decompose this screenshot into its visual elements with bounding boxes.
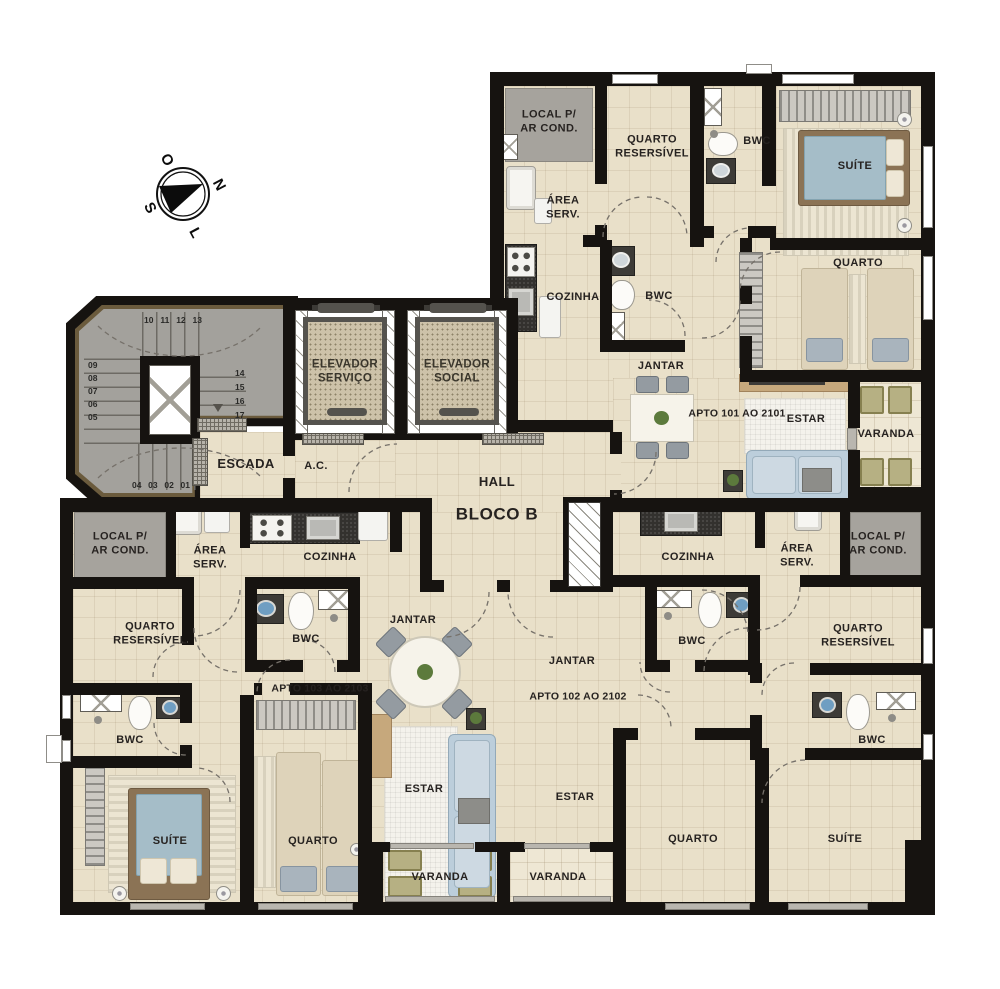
sink-basin (612, 252, 630, 268)
wall (283, 478, 295, 498)
room-label-area-serv: ÁREA SERV. (193, 544, 227, 572)
elevator-sill (439, 408, 479, 416)
wardrobe (85, 766, 105, 866)
wall (245, 660, 303, 672)
room-label-varanda: VARANDA (530, 871, 587, 885)
room-label-quarto: QUARTO (668, 833, 718, 847)
wall (60, 756, 192, 768)
stair-step-number: 05 (88, 412, 97, 422)
stair-step-number: 11 (160, 315, 169, 325)
closet (256, 700, 356, 730)
roller-cap (424, 305, 430, 311)
table-centerpiece (654, 411, 669, 425)
stair-shaft-window (149, 365, 191, 435)
rug (254, 756, 276, 888)
plant-icon (470, 712, 482, 724)
roller-cap (312, 305, 318, 311)
wall (420, 498, 432, 592)
shower (876, 692, 916, 710)
wall (748, 226, 776, 238)
room-label-jantar: JANTAR (549, 655, 595, 669)
window (923, 146, 933, 228)
room-label-quarto: QUARTO (833, 257, 883, 271)
apartment-id-label: APTO 101 AO 2101 (688, 407, 785, 420)
kitchen-sink (664, 510, 698, 532)
window-sill (130, 903, 205, 910)
patio-chair (388, 850, 422, 871)
stair-step-number: 06 (88, 399, 97, 409)
toilet (128, 696, 152, 730)
room-label-local-ar-cond: LOCAL P/ AR COND. (520, 108, 578, 136)
room-label-varanda: VARANDA (858, 428, 915, 442)
apartment-id-label: APTO 103 AO 2103 (271, 682, 368, 695)
elevator-vent (302, 433, 364, 445)
stair-step-number: 04 (132, 480, 141, 490)
window (62, 740, 71, 762)
stair-step-number: 02 (164, 480, 173, 490)
roller-cap (486, 305, 492, 311)
compass-needle-icon (159, 184, 203, 213)
elevator-door-roller (429, 303, 487, 313)
chair (636, 376, 659, 393)
wall (600, 340, 685, 352)
room-label-estar: ESTAR (787, 413, 825, 427)
wall (600, 498, 935, 512)
room-label-suite: SUÍTE (828, 833, 862, 847)
sink-basin (712, 163, 730, 178)
wall (390, 512, 402, 552)
room-label-bwc: BWC (858, 734, 885, 748)
shower-head-icon (330, 614, 338, 622)
wall (240, 512, 250, 548)
stair-step-number: 16 (235, 396, 244, 406)
wall (503, 420, 613, 432)
room-label-bwc: BWC (743, 135, 770, 149)
wall (610, 432, 622, 454)
pillow (170, 858, 197, 884)
ac-label: A.C. (304, 460, 328, 474)
apartment-id-label: APTO 102 AO 2102 (529, 690, 626, 703)
window (46, 735, 62, 763)
compass-rose: O N S L (135, 140, 235, 240)
floor-plan: 10111213 0908070605 14151617 04030201 (0, 0, 1000, 989)
nightstand (216, 886, 231, 901)
nightstand (112, 886, 127, 901)
stove (252, 515, 292, 541)
patio-chair (860, 458, 884, 486)
chair (666, 442, 689, 459)
wall (180, 683, 192, 723)
roller-cap (374, 305, 380, 311)
rug (849, 274, 866, 364)
window-sill (258, 903, 353, 910)
shower (80, 694, 122, 712)
room-label-quarto-reversivel: QUARTO RESERSÍVEL (113, 620, 187, 648)
stair-step-number: 01 (181, 480, 190, 490)
compass-east: L (185, 225, 204, 240)
sofa-cushion (752, 456, 796, 494)
wall (810, 663, 935, 675)
wall (770, 238, 921, 250)
room-label-cozinha: COZINHA (547, 291, 600, 305)
plant-icon (727, 474, 739, 486)
room-label-estar: ESTAR (405, 783, 443, 797)
wall (510, 842, 525, 852)
throw-blanket (458, 798, 490, 824)
wall (690, 86, 704, 247)
wall (740, 336, 752, 374)
room-label-quarto-reversivel: QUARTO RESERSÍVEL (615, 133, 689, 161)
elevator-social-label: ELEVADOR SOCIAL (424, 358, 490, 387)
wall (245, 577, 360, 589)
wall (600, 240, 612, 352)
stair-step-number: 10 (144, 315, 153, 325)
stair-step-number: 14 (235, 368, 244, 378)
wall (240, 695, 254, 902)
wall (60, 498, 422, 512)
door-sill (524, 843, 590, 849)
stair-step-number: 12 (176, 315, 185, 325)
room-label-area-serv: ÁREA SERV. (546, 194, 580, 222)
wall (755, 512, 765, 548)
room-label-varanda: VARANDA (412, 871, 469, 885)
page-title: BLOCO B (456, 503, 539, 524)
wall (800, 575, 935, 587)
room-label-bwc: BWC (292, 633, 319, 647)
wall (690, 226, 714, 238)
shower (704, 88, 722, 126)
nightstand (897, 112, 912, 127)
wall (495, 72, 935, 86)
room-label-jantar: JANTAR (390, 614, 436, 628)
window (62, 695, 71, 719)
stair-step-number: 08 (88, 373, 97, 383)
door-sill (390, 843, 474, 849)
elevator-vent (482, 433, 544, 445)
stair-step-numbers-right: 14151617 (235, 368, 244, 420)
room-label-suite: SUÍTE (838, 160, 872, 174)
window (612, 74, 658, 84)
shower-head-icon (664, 612, 672, 620)
wall (613, 575, 748, 587)
closet (779, 90, 911, 122)
stair-step-numbers-top: 10111213 (144, 315, 202, 325)
patio-chair (888, 458, 912, 486)
room-label-bwc: BWC (116, 734, 143, 748)
pillow (872, 338, 909, 362)
stair-direction-arrow-icon (213, 404, 223, 412)
stair-step-number: 17 (235, 410, 244, 420)
room-label-local-ar-cond: LOCAL P/ AR COND. (849, 530, 907, 558)
window (923, 734, 933, 760)
pillow (886, 139, 904, 166)
stair-step-number: 03 (148, 480, 157, 490)
patio-chair (860, 386, 884, 414)
door-sill (847, 428, 857, 450)
room-label-cozinha: COZINHA (304, 551, 357, 565)
patio-chair (888, 386, 912, 414)
wall (695, 728, 758, 740)
wall (283, 436, 295, 456)
wall (755, 748, 769, 902)
window-sill (513, 896, 611, 902)
stove (507, 247, 535, 277)
window-sill (665, 903, 750, 910)
window (746, 64, 772, 74)
wall (497, 580, 510, 592)
window-sill (788, 903, 868, 910)
toilet (288, 592, 314, 630)
wall (590, 842, 613, 852)
wall (905, 840, 935, 902)
pillow (806, 338, 843, 362)
room-label-cozinha: COZINHA (662, 551, 715, 565)
wall (370, 842, 383, 902)
room-label-area-serv: ÁREA SERV. (780, 542, 814, 570)
room-label-bwc: BWC (678, 635, 705, 649)
wall (805, 748, 935, 760)
wall (254, 683, 262, 695)
wall (645, 660, 670, 672)
room-label-suite: SUÍTE (153, 835, 187, 849)
chair (636, 442, 659, 459)
wall (490, 72, 504, 312)
stair-step-numbers-left: 0908070605 (88, 360, 97, 422)
window (923, 628, 933, 664)
sink-basin (162, 700, 178, 715)
window-sill (385, 896, 495, 902)
room-label-jantar: JANTAR (638, 360, 684, 374)
room-label-local-ar-cond: LOCAL P/ AR COND. (91, 530, 149, 558)
elevator-service-label: ELEVADOR SERVIÇO (312, 358, 378, 387)
wall (848, 376, 860, 428)
room-label-estar: ESTAR (556, 791, 594, 805)
stair-step-number: 13 (193, 315, 202, 325)
compass-north: N (209, 176, 229, 194)
wall (595, 86, 607, 184)
stair-step-number: 07 (88, 386, 97, 396)
stair-step-numbers-bottom: 04030201 (132, 480, 190, 490)
shower-head-icon (888, 714, 896, 722)
kitchen-sink (306, 516, 340, 540)
stair-step-number: 15 (235, 382, 244, 392)
wall (740, 286, 752, 304)
elevator-sill (327, 408, 367, 416)
wall (245, 577, 257, 672)
table-centerpiece (417, 664, 433, 680)
wall (600, 497, 613, 592)
shower-head-icon (94, 716, 102, 724)
stair-step-number: 09 (88, 360, 97, 370)
room-label-quarto: QUARTO (288, 835, 338, 849)
room-label-quarto-reversivel: QUARTO RESERSÍVEL (821, 622, 895, 650)
laundry-tank (506, 166, 536, 210)
wall (497, 842, 510, 902)
throw-blanket (802, 468, 832, 492)
nightstand (897, 218, 912, 233)
elevator-door-roller (317, 303, 375, 313)
pillow (280, 866, 317, 892)
compass-south: S (140, 199, 160, 216)
wall (337, 660, 360, 672)
wall (166, 512, 176, 580)
wall (60, 577, 192, 589)
sink-basin (819, 697, 836, 713)
stair-hatch (192, 438, 208, 486)
window (923, 256, 933, 320)
wall (740, 370, 921, 382)
wall (420, 580, 444, 592)
chair (666, 376, 689, 393)
wall (750, 663, 762, 683)
wall (740, 238, 752, 252)
wall (848, 450, 860, 488)
duct-panel (568, 502, 601, 587)
stair-hatch (197, 418, 247, 432)
toilet (846, 694, 870, 730)
pillow (886, 170, 904, 197)
wall (613, 842, 626, 902)
wall (60, 683, 192, 695)
pillow (140, 858, 167, 884)
window (782, 74, 854, 84)
room-label-bwc: BWC (645, 290, 672, 304)
toilet (609, 280, 635, 310)
compass-west: O (157, 151, 178, 170)
shower-head-icon (710, 130, 718, 138)
sink-basin (256, 600, 276, 617)
stairs-label: ESCADA (217, 456, 274, 472)
toilet (698, 592, 722, 628)
hall-label: HALL (479, 474, 515, 490)
